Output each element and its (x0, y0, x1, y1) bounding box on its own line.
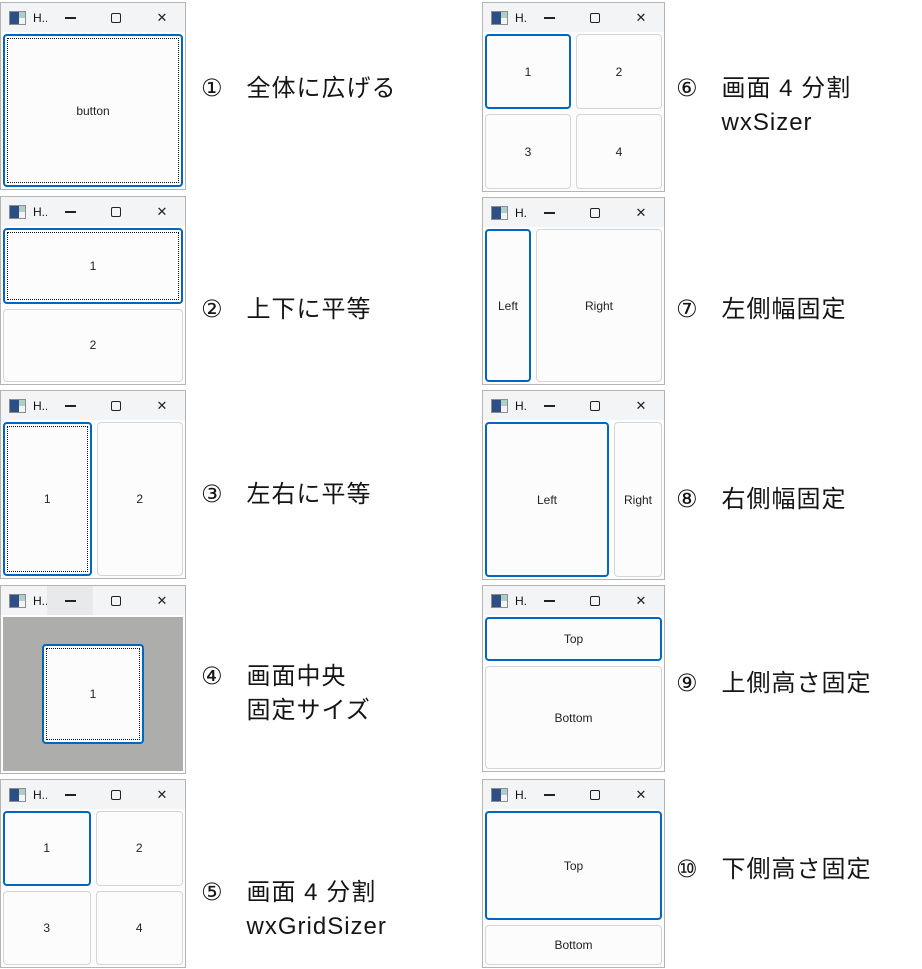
window-left-fixed-width: H...✕LeftRight (482, 197, 665, 385)
titlebar[interactable]: H...✕ (483, 391, 664, 420)
app-icon-left-pane (492, 595, 501, 607)
button-2[interactable]: 2 (97, 422, 184, 576)
client-area: 1234 (3, 811, 183, 965)
client-area: button (3, 34, 183, 187)
app-icon-ground (501, 213, 507, 219)
caption-7: ⑦左側幅固定 (676, 293, 847, 327)
close-icon: ✕ (636, 788, 647, 801)
caption-3: ③左右に平等 (201, 478, 372, 512)
minimize-icon (65, 600, 76, 602)
titlebar[interactable]: H...✕ (1, 3, 185, 32)
minimize-icon (65, 17, 76, 19)
circled-number: ⑩ (676, 853, 698, 887)
app-icon (491, 788, 508, 802)
button-button[interactable]: button (3, 34, 183, 187)
app-icon-ground (19, 601, 25, 607)
minimize-button[interactable] (47, 391, 93, 420)
minimize-button[interactable] (526, 3, 572, 32)
app-icon (9, 788, 26, 802)
app-icon (491, 594, 508, 608)
app-icon-left-pane (492, 207, 501, 219)
circled-number: ⑥ (676, 72, 698, 106)
button-3[interactable]: 3 (3, 891, 91, 966)
minimize-button[interactable] (526, 586, 572, 615)
app-icon-right-pane (501, 12, 507, 24)
maximize-button[interactable] (93, 780, 139, 809)
close-button[interactable]: ✕ (618, 3, 664, 32)
minimize-icon (544, 17, 555, 19)
titlebar[interactable]: H...✕ (483, 198, 664, 227)
minimize-icon (65, 794, 76, 796)
close-button[interactable]: ✕ (618, 586, 664, 615)
minimize-button[interactable] (47, 197, 93, 226)
close-button[interactable]: ✕ (139, 3, 185, 32)
window-title: H... (33, 788, 47, 802)
maximize-button[interactable] (572, 586, 618, 615)
button-2[interactable]: 2 (576, 34, 662, 109)
app-icon (491, 206, 508, 220)
button-right[interactable]: Right (614, 422, 662, 577)
titlebar[interactable]: H...✕ (483, 3, 664, 32)
client-area: 12 (3, 422, 183, 576)
button-1[interactable]: 1 (3, 422, 92, 576)
app-icon-right-pane (501, 400, 507, 412)
maximize-button[interactable] (93, 586, 139, 615)
circled-number: ① (201, 72, 223, 106)
window-title: H... (515, 399, 526, 413)
close-icon: ✕ (157, 788, 168, 801)
button-2[interactable]: 2 (96, 811, 184, 886)
caption-1: ①全体に広げる (201, 72, 397, 106)
client-area: 1234 (485, 34, 662, 189)
app-icon (9, 205, 26, 219)
caption-text: 上下に平等 (247, 293, 372, 327)
app-icon (9, 399, 26, 413)
minimize-icon (544, 212, 555, 214)
window-grid-sizer-4split: H...✕1234 (0, 779, 186, 968)
caption-text: 画面中央 固定サイズ (247, 660, 371, 728)
window-title: H... (33, 399, 47, 413)
app-icon-ground (501, 406, 507, 412)
app-icon-left-pane (492, 400, 501, 412)
maximize-icon (111, 207, 121, 217)
caption-text: 左右に平等 (247, 478, 372, 512)
window-vertical-equal: H...✕12 (0, 196, 186, 385)
button-1[interactable]: 1 (3, 811, 91, 886)
window-title: H... (33, 205, 47, 219)
circled-number: ③ (201, 478, 223, 512)
button-top[interactable]: Top (485, 811, 662, 920)
window-expand-full: H...✕button (0, 2, 186, 190)
close-button[interactable]: ✕ (618, 198, 664, 227)
circled-number: ④ (201, 660, 223, 694)
close-icon: ✕ (636, 399, 647, 412)
app-icon-left-pane (492, 789, 501, 801)
titlebar[interactable]: H...✕ (1, 391, 185, 420)
close-button[interactable]: ✕ (618, 780, 664, 809)
app-icon-right-pane (19, 206, 25, 218)
app-icon-left-pane (10, 12, 19, 24)
titlebar[interactable]: H...✕ (483, 586, 664, 615)
app-icon (491, 399, 508, 413)
window-title: H... (33, 594, 47, 608)
close-icon: ✕ (636, 206, 647, 219)
app-icon-left-pane (492, 12, 501, 24)
maximize-icon (590, 790, 600, 800)
caption-5: ⑤画面 4 分割 wxGridSizer (201, 876, 387, 944)
caption-text: 全体に広げる (247, 72, 397, 106)
titlebar[interactable]: H...✕ (1, 586, 185, 615)
window-centered-fixed: H...✕1 (0, 585, 186, 774)
button-right[interactable]: Right (536, 229, 662, 382)
app-icon-ground (19, 406, 25, 412)
caption-9: ⑨上側高さ固定 (676, 667, 872, 701)
app-icon-right-pane (19, 789, 25, 801)
app-icon-left-pane (10, 206, 19, 218)
caption-text: 画面 4 分割 wxGridSizer (247, 876, 387, 944)
button-1[interactable]: 1 (3, 228, 183, 304)
close-icon: ✕ (636, 594, 647, 607)
button-bottom[interactable]: Bottom (485, 925, 662, 965)
button-3[interactable]: 3 (485, 114, 571, 189)
close-icon: ✕ (157, 399, 168, 412)
close-button[interactable]: ✕ (139, 780, 185, 809)
window-title: H... (515, 11, 526, 25)
maximize-button[interactable] (572, 3, 618, 32)
minimize-button[interactable] (47, 3, 93, 32)
maximize-icon (590, 13, 600, 23)
app-icon-ground (19, 212, 25, 218)
window-horizontal-equal: H...✕12 (0, 390, 186, 579)
window-right-fixed-width: H...✕LeftRight (482, 390, 665, 580)
maximize-icon (111, 401, 121, 411)
button-4[interactable]: 4 (576, 114, 662, 189)
maximize-button[interactable] (93, 197, 139, 226)
maximize-button[interactable] (93, 391, 139, 420)
minimize-button[interactable] (47, 586, 93, 615)
app-icon-ground (501, 601, 507, 607)
circled-number: ⑨ (676, 667, 698, 701)
window-title: H... (515, 206, 526, 220)
maximize-button[interactable] (572, 198, 618, 227)
minimize-button[interactable] (47, 780, 93, 809)
app-icon-ground (501, 18, 507, 24)
app-icon-ground (19, 795, 25, 801)
button-4[interactable]: 4 (96, 891, 184, 966)
caption-text: 画面 4 分割 wxSizer (722, 72, 852, 140)
minimize-button[interactable] (526, 198, 572, 227)
app-icon-right-pane (19, 400, 25, 412)
app-icon-ground (501, 795, 507, 801)
client-area: LeftRight (485, 422, 662, 577)
close-button[interactable]: ✕ (139, 586, 185, 615)
minimize-icon (65, 405, 76, 407)
caption-text: 左側幅固定 (722, 293, 847, 327)
circled-number: ⑤ (201, 876, 223, 910)
app-icon-left-pane (10, 400, 19, 412)
close-icon: ✕ (157, 11, 168, 24)
maximize-button[interactable] (572, 780, 618, 809)
titlebar[interactable]: H...✕ (1, 197, 185, 226)
button-1[interactable]: 1 (485, 34, 571, 109)
app-icon-right-pane (501, 789, 507, 801)
client-area: TopBottom (485, 617, 662, 769)
window-title: H... (515, 788, 526, 802)
window-title: H... (33, 11, 47, 25)
screenshot-canvas: H...✕buttonH...✕12H...✕12H...✕1H...✕1234… (0, 0, 922, 969)
close-button[interactable]: ✕ (618, 391, 664, 420)
app-icon-left-pane (10, 789, 19, 801)
circled-number: ⑧ (676, 483, 698, 517)
close-icon: ✕ (636, 11, 647, 24)
caption-2: ②上下に平等 (201, 293, 372, 327)
app-icon-right-pane (501, 595, 507, 607)
close-icon: ✕ (157, 205, 168, 218)
client-area: TopBottom (485, 811, 662, 965)
window-top-fixed-height: H...✕TopBottom (482, 585, 665, 772)
app-icon (9, 594, 26, 608)
client-area: 12 (3, 228, 183, 382)
minimize-button[interactable] (526, 780, 572, 809)
caption-text: 上側高さ固定 (722, 667, 872, 701)
app-icon-right-pane (19, 595, 25, 607)
button-2[interactable]: 2 (3, 309, 183, 383)
button-bottom[interactable]: Bottom (485, 666, 662, 769)
titlebar[interactable]: H...✕ (1, 780, 185, 809)
app-icon (9, 11, 26, 25)
button-1[interactable]: 1 (42, 644, 144, 744)
button-left[interactable]: Left (485, 229, 531, 382)
minimize-icon (544, 405, 555, 407)
minimize-icon (544, 794, 555, 796)
app-icon-right-pane (501, 207, 507, 219)
maximize-button[interactable] (572, 391, 618, 420)
maximize-icon (590, 596, 600, 606)
close-button[interactable]: ✕ (139, 197, 185, 226)
button-top[interactable]: Top (485, 617, 662, 661)
caption-6: ⑥画面 4 分割 wxSizer (676, 72, 851, 140)
minimize-icon (65, 211, 76, 213)
window-bottom-fixed-height: H...✕TopBottom (482, 779, 665, 968)
client-area: 1 (3, 617, 183, 771)
close-button[interactable]: ✕ (139, 391, 185, 420)
titlebar[interactable]: H...✕ (483, 780, 664, 809)
maximize-icon (111, 790, 121, 800)
close-icon: ✕ (157, 594, 168, 607)
maximize-icon (590, 208, 600, 218)
app-icon-ground (19, 18, 25, 24)
caption-8: ⑧右側幅固定 (676, 483, 847, 517)
caption-10: ⑩下側高さ固定 (676, 853, 872, 887)
app-icon-left-pane (10, 595, 19, 607)
maximize-icon (111, 596, 121, 606)
maximize-icon (111, 13, 121, 23)
minimize-icon (544, 600, 555, 602)
app-icon-right-pane (19, 12, 25, 24)
circled-number: ② (201, 293, 223, 327)
window-title: H... (515, 594, 526, 608)
button-left[interactable]: Left (485, 422, 609, 577)
caption-4: ④画面中央 固定サイズ (201, 660, 371, 728)
client-area: LeftRight (485, 229, 662, 382)
maximize-icon (590, 401, 600, 411)
circled-number: ⑦ (676, 293, 698, 327)
caption-text: 右側幅固定 (722, 483, 847, 517)
maximize-button[interactable] (93, 3, 139, 32)
minimize-button[interactable] (526, 391, 572, 420)
caption-text: 下側高さ固定 (722, 853, 872, 887)
app-icon (491, 11, 508, 25)
window-box-sizer-4split: H...✕1234 (482, 2, 665, 192)
